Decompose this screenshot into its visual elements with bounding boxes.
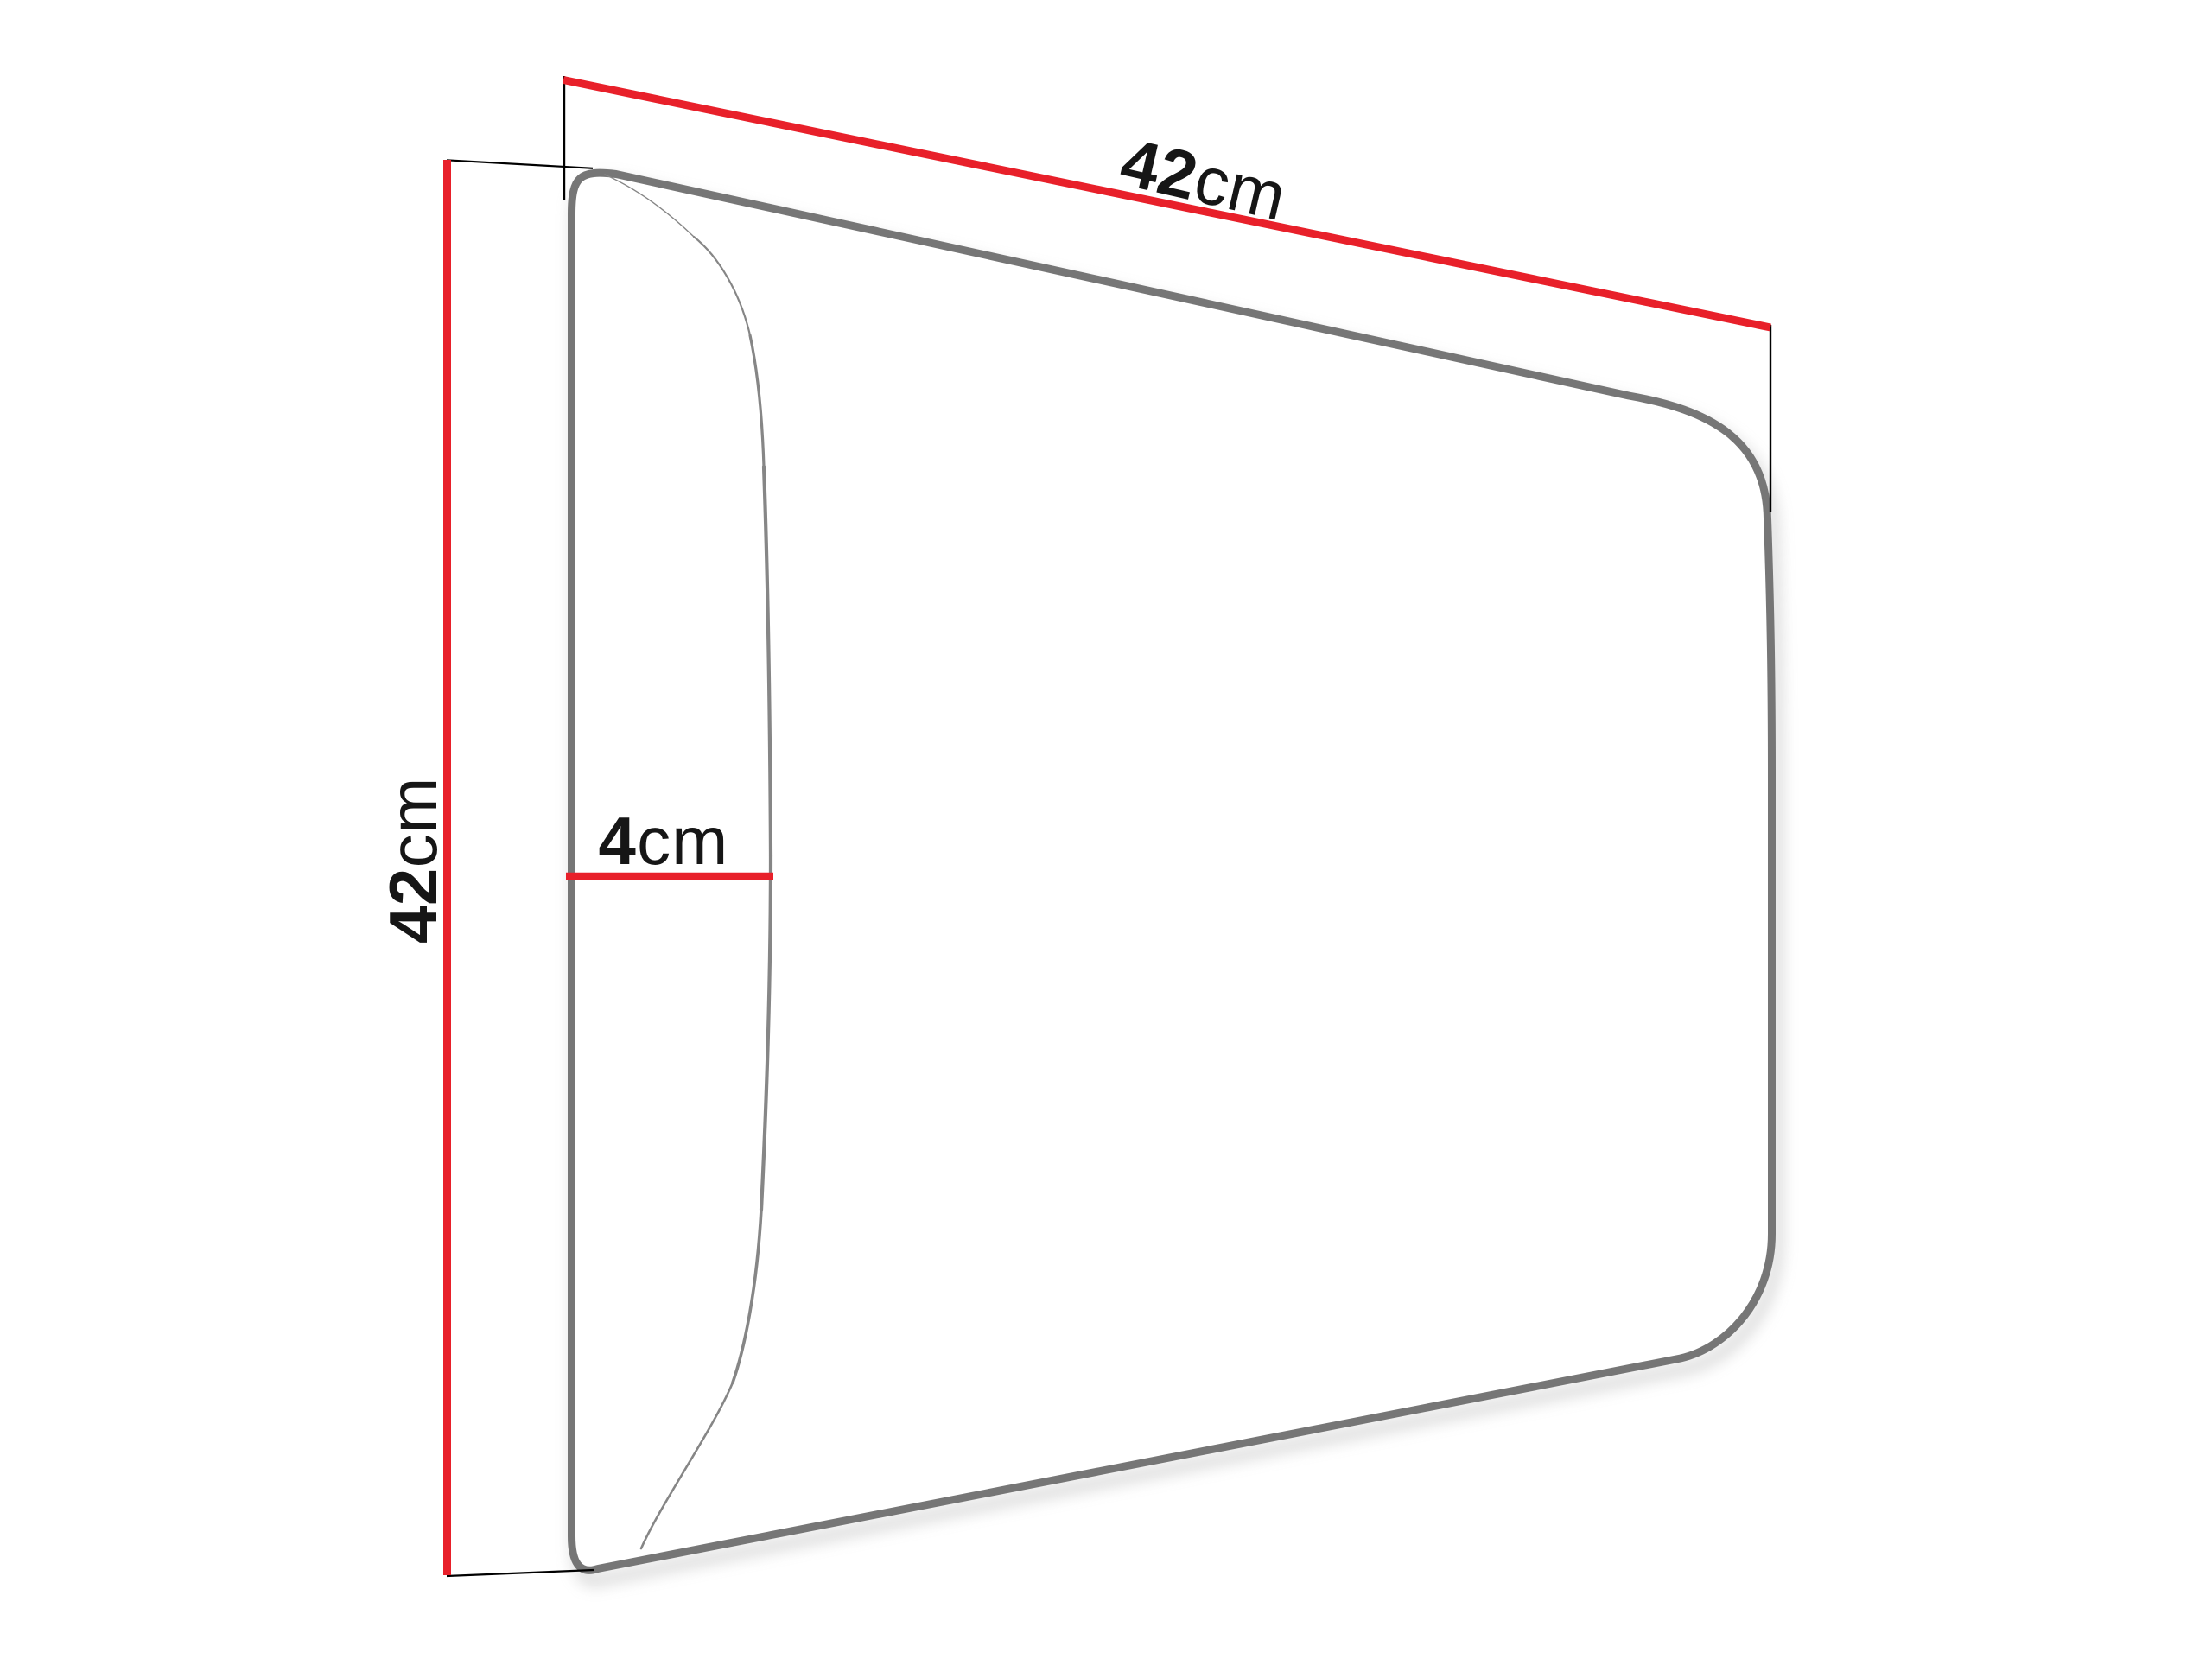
svg-text:4cm: 4cm (599, 803, 729, 879)
svg-text:42cm: 42cm (375, 777, 451, 944)
svg-text:42cm: 42cm (1114, 124, 1294, 235)
